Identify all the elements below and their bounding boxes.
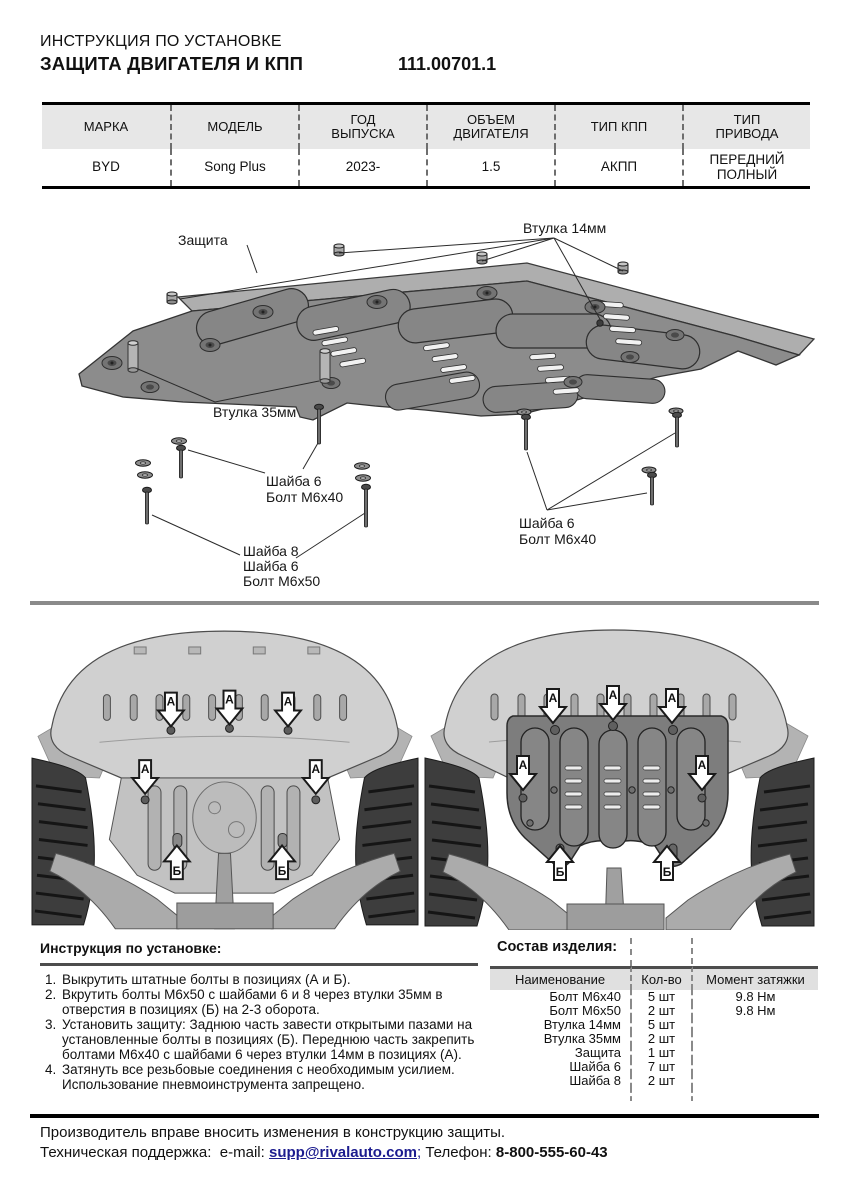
svg-text:А: А: [519, 758, 528, 772]
vehicle-brand: BYD: [42, 149, 170, 186]
svg-text:А: А: [668, 691, 677, 705]
part-row: Болт М6х50 2 шт 9.8 Нм: [490, 1004, 818, 1018]
vehicle-table-header-row: МАРКА МОДЕЛЬ ГОД ВЫПУСКА ОБЪЕМ ДВИГАТЕЛЯ…: [42, 105, 810, 149]
vehicle-table-data-row: BYD Song Plus 2023- 1.5 АКПП ПЕРЕДНИЙ ПО…: [42, 149, 810, 186]
svg-text:А: А: [167, 695, 176, 709]
vehicle-col-drive: ТИП ПРИВОДА: [682, 105, 810, 149]
tire-left: [425, 758, 488, 926]
parts-col-name: Наименование: [490, 966, 632, 990]
parts-col-qty: Кол-во: [632, 966, 693, 990]
callout-bolt-m6x50: Болт М6х50: [243, 573, 320, 589]
doc-number: 111.00701.1: [398, 54, 496, 75]
svg-text:А: А: [549, 691, 558, 705]
instruction-step: Вкрутить болты М6х50 с шайбами 6 и 8 чер…: [60, 987, 478, 1017]
vehicle-engine: 1.5: [426, 149, 554, 186]
vehicle-col-model: МОДЕЛЬ: [170, 105, 298, 149]
part-torque: [693, 1046, 818, 1060]
bushing35-icon: [128, 341, 138, 373]
part-name: Болт М6х50: [490, 1004, 632, 1018]
part-qty: 5 шт: [632, 990, 693, 1004]
manufacturer-note: Производитель вправе вносить изменения в…: [40, 1124, 819, 1141]
footer: Производитель вправе вносить изменения в…: [30, 1114, 819, 1161]
parts-header-row: Наименование Кол-во Момент затяжки: [490, 966, 818, 990]
svg-text:Б: Б: [173, 864, 182, 878]
vehicle-gearbox: АКПП: [554, 149, 682, 186]
part-torque: 9.8 Нм: [693, 1004, 818, 1018]
support-line: Техническая поддержка: e-mail: supp@riva…: [40, 1144, 819, 1161]
tire-right: [751, 758, 814, 926]
vehicle-col-gearbox: ТИП КПП: [554, 105, 682, 149]
svg-text:Б: Б: [278, 864, 287, 878]
installed-bushing-hole: [597, 320, 603, 326]
support-email-link[interactable]: supp@rivalauto.com: [269, 1144, 417, 1161]
underbody-image-without-plate: А А А А А Б Б: [30, 618, 420, 930]
svg-text:А: А: [609, 688, 618, 702]
tire-right: [356, 758, 418, 925]
instruction-step: Затянуть все резьбовые соединения с необ…: [60, 1062, 478, 1092]
svg-text:А: А: [284, 695, 293, 709]
parts-list: Состав изделия: Наименование Кол-во Моме…: [490, 938, 818, 1101]
vehicle-col-brand: МАРКА: [42, 105, 170, 149]
svg-text:Б: Б: [663, 865, 672, 879]
vehicle-col-engine: ОБЪЕМ ДВИГАТЕЛЯ: [426, 105, 554, 149]
part-torque: [693, 1032, 818, 1046]
svg-text:А: А: [312, 762, 321, 776]
vehicle-year: 2023-: [298, 149, 426, 186]
part-torque: [693, 1060, 818, 1074]
part-qty: 2 шт: [632, 1074, 693, 1088]
skid-plate-drawing: [79, 263, 814, 420]
callout-washer6-left: Шайба 6: [266, 473, 322, 489]
installation-instructions: Инструкция по установке: Выкрутить штатн…: [40, 940, 478, 1092]
skid-plate-exploded-diagram: Защита Втулка 14мм Втулка 35мм Шайба 6 Б…: [35, 205, 815, 600]
part-row: Защита 1 шт: [490, 1046, 818, 1060]
callout-bolt-m6x40-left: Болт М6х40: [266, 489, 343, 505]
part-name: Втулка 14мм: [490, 1018, 632, 1032]
part-name: Защита: [490, 1046, 632, 1060]
suspension-arms: [443, 854, 796, 930]
part-qty: 1 шт: [632, 1046, 693, 1060]
callout-shield: Защита: [178, 232, 228, 248]
svg-text:Б: Б: [556, 865, 565, 879]
tire-left: [32, 758, 94, 925]
parts-spacer-row: [490, 1088, 818, 1101]
part-torque: 9.8 Нм: [693, 990, 818, 1004]
email-label: e-mail:: [220, 1144, 265, 1161]
part-torque: [693, 1074, 818, 1088]
callout-washer6-mid: Шайба 6: [243, 558, 299, 574]
instructions-rule: [40, 963, 478, 966]
parts-title: Состав изделия:: [490, 938, 632, 966]
part-name: Болт М6х40: [490, 990, 632, 1004]
phone-number: 8-800-555-60-43: [496, 1144, 608, 1161]
parts-col-torque: Момент затяжки: [693, 966, 818, 990]
instruction-step: Установить защиту: Заднюю часть завести …: [60, 1017, 478, 1062]
bushing35-icon: [320, 349, 330, 384]
callout-bolt-m6x40-right: Болт М6х40: [519, 531, 596, 547]
part-torque: [693, 1018, 818, 1032]
svg-text:А: А: [698, 758, 707, 772]
instruction-sheet: ИНСТРУКЦИЯ ПО УСТАНОВКЕ ЗАЩИТА ДВИГАТЕЛЯ…: [0, 0, 849, 1200]
part-row: Шайба 8 2 шт: [490, 1074, 818, 1088]
part-qty: 5 шт: [632, 1018, 693, 1032]
callout-washer6-right: Шайба 6: [519, 515, 575, 531]
parts-title-row: Состав изделия:: [490, 938, 818, 966]
svg-text:А: А: [225, 693, 234, 707]
installed-skid-plate: [507, 716, 728, 866]
part-row: Втулка 35мм 2 шт: [490, 1032, 818, 1046]
doc-title: ЗАЩИТА ДВИГАТЕЛЯ И КПП: [40, 53, 303, 75]
part-row: Болт М6х40 5 шт 9.8 Нм: [490, 990, 818, 1004]
part-qty: 2 шт: [632, 1032, 693, 1046]
doc-subtitle: ИНСТРУКЦИЯ ПО УСТАНОВКЕ: [40, 33, 282, 51]
part-row: Втулка 14мм 5 шт: [490, 1018, 818, 1032]
phone-label: Телефон:: [425, 1144, 491, 1161]
part-qty: 7 шт: [632, 1060, 693, 1074]
svg-text:А: А: [141, 762, 150, 776]
vehicle-col-year: ГОД ВЫПУСКА: [298, 105, 426, 149]
underbody-image-with-plate: А А А А А Б Б: [423, 618, 816, 930]
section-divider: [30, 601, 819, 605]
callout-washer8: Шайба 8: [243, 543, 299, 559]
vehicle-table: МАРКА МОДЕЛЬ ГОД ВЫПУСКА ОБЪЕМ ДВИГАТЕЛЯ…: [42, 102, 810, 189]
part-name: Втулка 35мм: [490, 1032, 632, 1046]
vehicle-model: Song Plus: [170, 149, 298, 186]
bolt-icons: [143, 404, 682, 527]
part-qty: 2 шт: [632, 1004, 693, 1018]
separator: ;: [417, 1144, 421, 1161]
support-label: Техническая поддержка:: [40, 1144, 211, 1161]
part-row: Шайба 6 7 шт: [490, 1060, 818, 1074]
part-name: Шайба 8: [490, 1074, 632, 1088]
callout-bushing14: Втулка 14мм: [523, 220, 606, 236]
part-name: Шайба 6: [490, 1060, 632, 1074]
vehicle-drive: ПЕРЕДНИЙ ПОЛНЫЙ: [682, 149, 810, 186]
callout-bushing35: Втулка 35мм: [213, 404, 296, 420]
instruction-steps: Выкрутить штатные болты в позициях (А и …: [40, 972, 478, 1092]
instructions-title: Инструкция по установке:: [40, 940, 478, 956]
instruction-step: Выкрутить штатные болты в позициях (А и …: [60, 972, 478, 987]
